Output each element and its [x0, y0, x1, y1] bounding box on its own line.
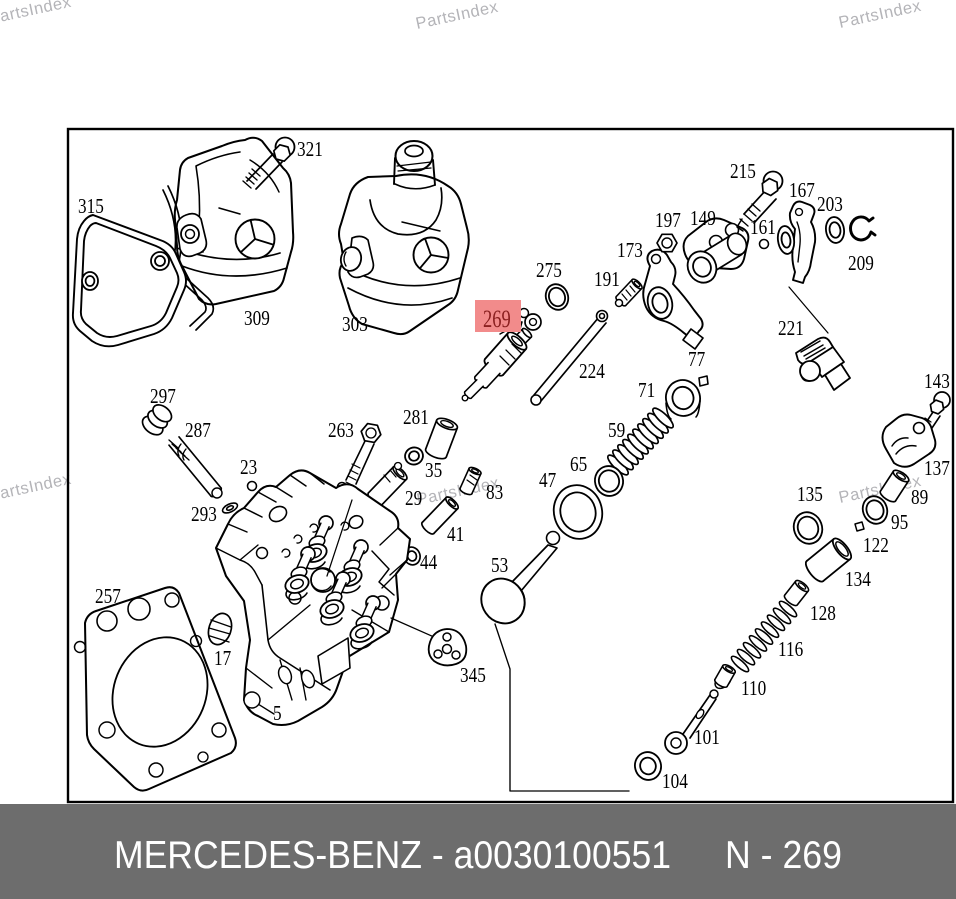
svg-text:287: 287 — [185, 420, 211, 443]
svg-text:221: 221 — [778, 318, 804, 341]
svg-text:128: 128 — [810, 603, 836, 626]
svg-text:203: 203 — [817, 194, 843, 217]
svg-text:83: 83 — [486, 482, 503, 505]
svg-text:5: 5 — [273, 703, 282, 726]
svg-text:59: 59 — [608, 420, 625, 443]
svg-text:71: 71 — [638, 380, 655, 403]
svg-text:95: 95 — [891, 512, 908, 535]
svg-text:257: 257 — [95, 586, 121, 609]
svg-text:167: 167 — [789, 180, 815, 203]
svg-text:101: 101 — [694, 727, 720, 750]
svg-text:315: 315 — [78, 196, 104, 219]
svg-text:35: 35 — [425, 460, 442, 483]
svg-text:116: 116 — [778, 639, 804, 662]
svg-text:104: 104 — [662, 771, 688, 794]
svg-text:161: 161 — [750, 217, 776, 240]
svg-text:269: 269 — [483, 304, 511, 332]
svg-text:44: 44 — [420, 552, 438, 575]
svg-text:297: 297 — [150, 386, 176, 409]
svg-text:197: 197 — [655, 210, 681, 233]
svg-text:89: 89 — [911, 487, 928, 510]
svg-text:135: 135 — [797, 484, 823, 507]
svg-text:77: 77 — [688, 349, 706, 372]
svg-text:53: 53 — [491, 555, 508, 578]
svg-text:309: 309 — [244, 308, 270, 331]
svg-text:143: 143 — [924, 371, 950, 394]
svg-text:303: 303 — [342, 314, 368, 337]
svg-text:293: 293 — [191, 504, 217, 527]
svg-text:275: 275 — [536, 260, 562, 283]
svg-text:215: 215 — [730, 161, 756, 184]
svg-text:MERCEDES-BENZ - a0030100551: MERCEDES-BENZ - a0030100551 — [114, 834, 671, 877]
svg-text:134: 134 — [845, 569, 871, 592]
svg-text:263: 263 — [328, 420, 354, 443]
svg-text:321: 321 — [297, 139, 323, 162]
svg-text:29: 29 — [405, 488, 422, 511]
svg-text:149: 149 — [690, 208, 716, 231]
svg-text:41: 41 — [447, 524, 464, 547]
svg-text:N - 269: N - 269 — [725, 834, 842, 877]
svg-text:47: 47 — [539, 470, 557, 493]
svg-text:281: 281 — [403, 407, 429, 430]
svg-text:17: 17 — [214, 648, 232, 671]
svg-text:137: 137 — [924, 458, 950, 481]
svg-text:209: 209 — [848, 253, 874, 276]
svg-text:65: 65 — [570, 454, 587, 477]
svg-text:345: 345 — [460, 665, 486, 688]
svg-text:110: 110 — [741, 678, 766, 701]
svg-text:23: 23 — [240, 457, 257, 480]
svg-text:224: 224 — [579, 361, 605, 384]
svg-text:191: 191 — [594, 269, 620, 292]
svg-text:173: 173 — [617, 240, 643, 263]
svg-text:122: 122 — [863, 535, 889, 558]
